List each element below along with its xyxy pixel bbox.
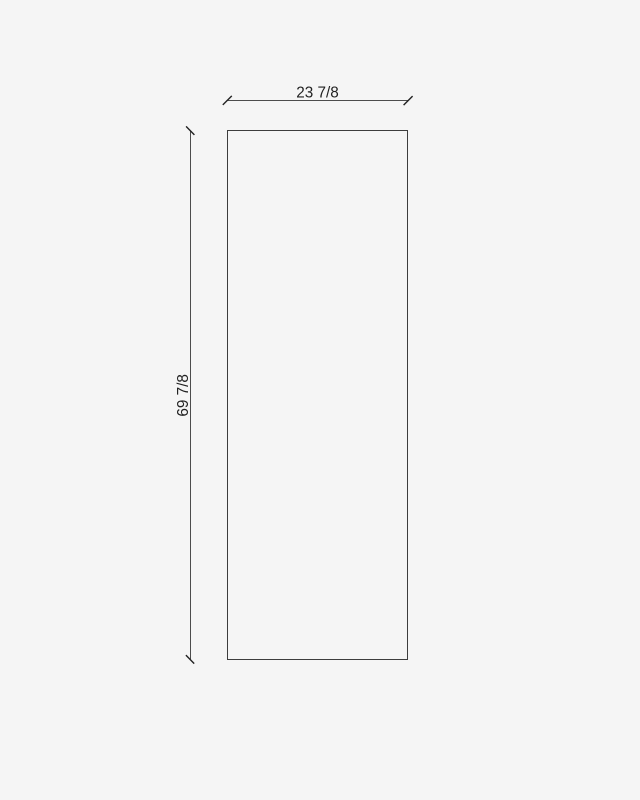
svg-text:69 7/8: 69 7/8 (175, 374, 192, 417)
svg-text:23 7/8: 23 7/8 (296, 85, 339, 102)
